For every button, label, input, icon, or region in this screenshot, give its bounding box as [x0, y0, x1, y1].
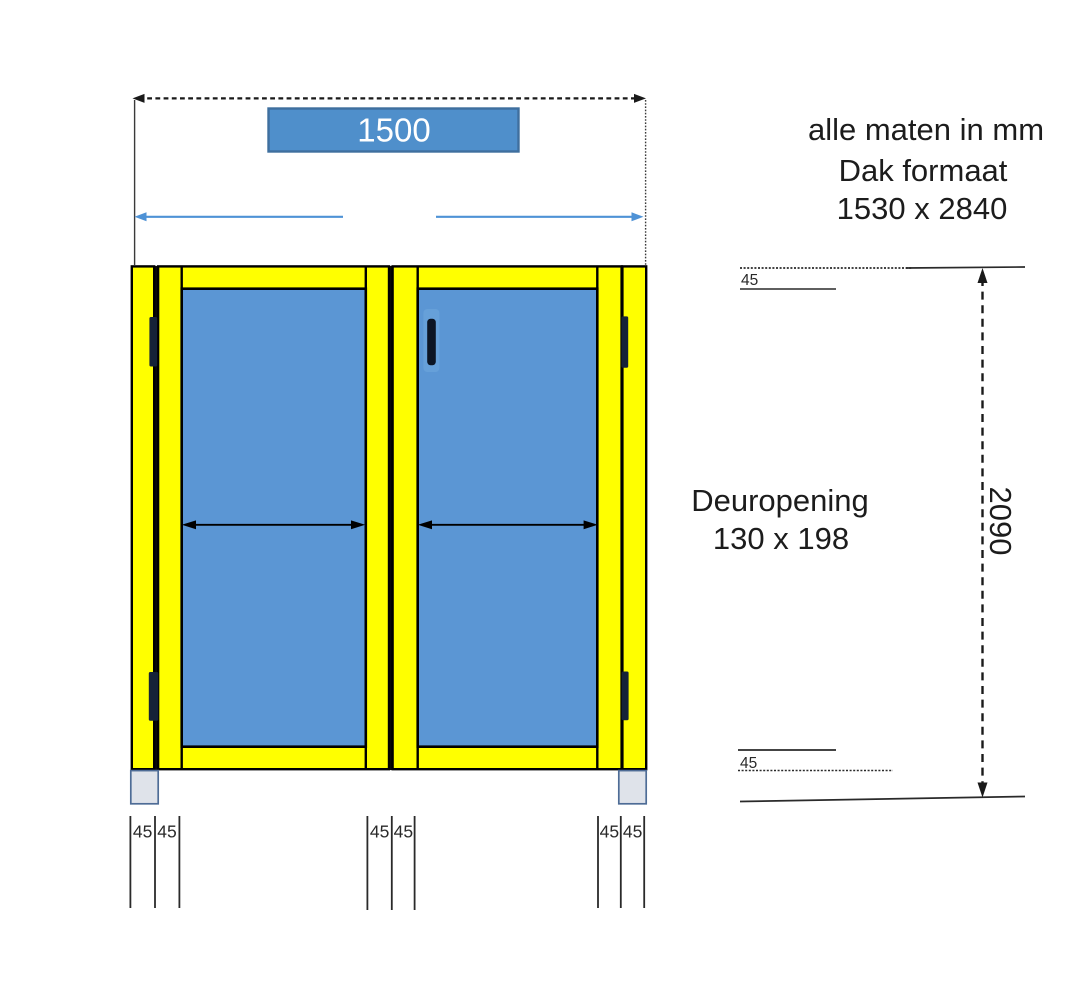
svg-text:45: 45 [741, 272, 758, 289]
svg-text:45: 45 [623, 821, 642, 841]
svg-text:45: 45 [370, 821, 389, 841]
svg-text:Deuropening: Deuropening [691, 483, 869, 518]
svg-text:1500: 1500 [357, 112, 430, 149]
svg-text:Dak formaat: Dak formaat [839, 153, 1008, 188]
svg-text:45: 45 [157, 821, 176, 841]
svg-text:45: 45 [600, 821, 619, 841]
svg-text:45: 45 [394, 821, 413, 841]
svg-text:130 x 198: 130 x 198 [713, 521, 849, 556]
svg-text:2090: 2090 [983, 487, 1018, 556]
svg-text:45: 45 [133, 821, 152, 841]
svg-text:alle maten in mm: alle maten in mm [808, 112, 1044, 147]
svg-text:45: 45 [740, 755, 757, 772]
svg-text:1530 x 2840: 1530 x 2840 [837, 191, 1008, 226]
